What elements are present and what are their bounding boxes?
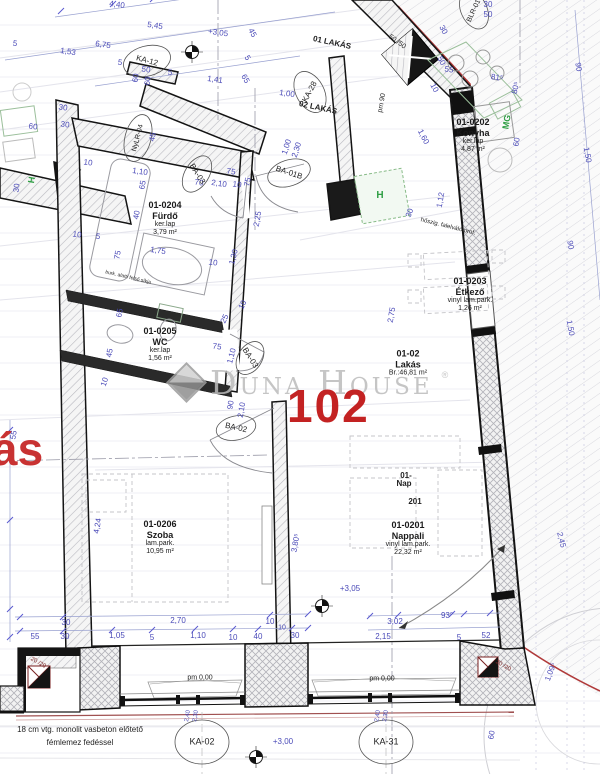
left-edge-partial-text: ás	[0, 426, 43, 472]
registered-mark: ®	[442, 370, 449, 380]
shaft-box	[354, 168, 410, 224]
canopy-column-detail	[18, 648, 80, 712]
wall-pier	[78, 646, 120, 710]
shelf	[262, 506, 272, 584]
wall-pier	[245, 643, 308, 707]
apartment-number: 102	[287, 383, 370, 429]
floorplan-page: Duna House ® 102 ás 01-02 Lakás Br.:46,8…	[0, 0, 600, 774]
duna-house-logo-icon	[166, 362, 207, 403]
right-wall-window-niche	[467, 271, 495, 329]
